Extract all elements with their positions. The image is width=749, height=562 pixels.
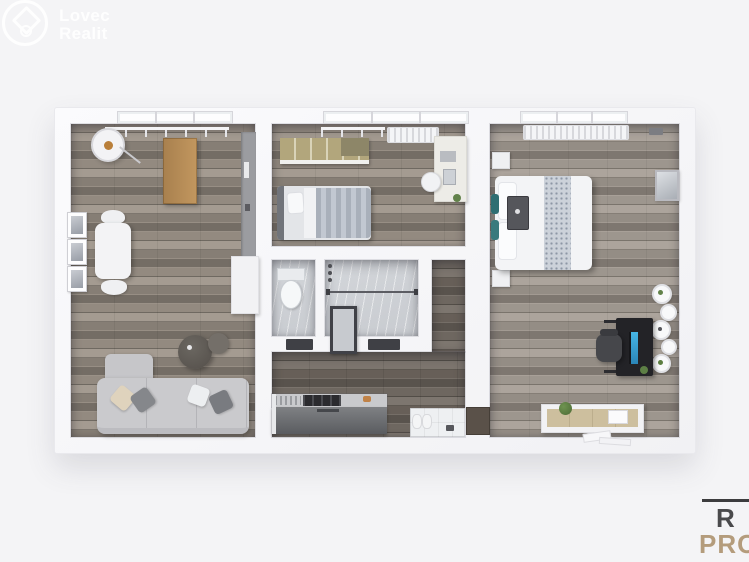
- toilet-bowl: [280, 280, 302, 309]
- cooktop: [303, 395, 341, 406]
- dining-chair: [101, 280, 127, 295]
- small-bedroom-window: [323, 111, 469, 124]
- coffee-table-small: [208, 333, 229, 354]
- sink-drainer: [275, 396, 301, 405]
- papers-on-floor: [599, 437, 631, 446]
- counter-end-panel: [272, 394, 276, 434]
- glass-partition-mount: [414, 289, 418, 295]
- logo-dot-icon: [20, 25, 32, 37]
- counter-item: [363, 396, 371, 402]
- shower-glass-partition: [327, 291, 418, 293]
- hallway-floor: [432, 260, 465, 352]
- floor-lamp-bulb: [104, 141, 113, 150]
- single-bed: [277, 186, 371, 240]
- white-cabinet: [231, 256, 259, 314]
- double-bed: [495, 176, 592, 270]
- kitchen-cabinet-front: [272, 407, 387, 434]
- dining-chair: [101, 210, 125, 224]
- bedroom-curtain-rail: [321, 127, 385, 137]
- master-radiator-grille: [523, 125, 629, 140]
- office-chair: [596, 334, 622, 362]
- watermark-rule: [702, 499, 749, 502]
- single-bed-headboard: [277, 186, 284, 240]
- nightstand: [492, 270, 510, 287]
- desk-plant: [453, 194, 461, 202]
- bathroom-door-panel: [330, 306, 357, 354]
- teal-cushion: [491, 220, 499, 240]
- wall-art-frame: [67, 239, 87, 265]
- shower-fixture: [328, 264, 332, 268]
- round-wall-shelf: [660, 304, 677, 321]
- cabinet-handle: [317, 409, 339, 412]
- single-bed-pillow: [286, 191, 304, 214]
- master-bedroom-floor: [490, 124, 679, 437]
- bedroom-desk: [434, 136, 467, 202]
- bathroom-door-threshold: [368, 339, 400, 350]
- nightstand: [492, 152, 510, 169]
- watermark-text-bottom: PRO: [699, 531, 749, 557]
- desk-chair: [421, 172, 441, 192]
- shoe: [412, 414, 422, 429]
- shower-fixture: [328, 271, 332, 275]
- brand-name-line1: Lovec: [59, 7, 110, 25]
- master-bedroom-window: [520, 111, 628, 124]
- round-wall-shelf: [652, 354, 671, 373]
- apartment-floorplan-render: [55, 108, 695, 453]
- brand-name-line2: Realit: [59, 25, 110, 43]
- office-chair-headrest: [600, 329, 618, 336]
- real-estate-floorplan-page: { "canvas": { "width": 749, "height": 56…: [0, 0, 749, 562]
- tall-gray-cabinet: [241, 132, 256, 270]
- sideboard: [541, 404, 644, 433]
- brand-logo-icon: [2, 0, 48, 46]
- cabinet-detail: [245, 204, 250, 211]
- wardrobe-open-section: [341, 138, 369, 156]
- wall-vent: [649, 128, 663, 135]
- bed-tray: [507, 196, 529, 230]
- brand-name: Lovec Realit: [59, 3, 110, 46]
- teal-cushion: [491, 194, 499, 214]
- oak-desk: [163, 138, 197, 204]
- wall-art-frame: [67, 212, 87, 238]
- dining-table: [95, 223, 131, 279]
- wall-art-frame: [67, 266, 87, 292]
- living-curtain-rail: [105, 127, 229, 137]
- books-stack: [608, 410, 628, 424]
- single-bed-sheet-fold: [304, 188, 316, 238]
- master-wall-picture: [655, 170, 679, 201]
- kitchen-countertop: [272, 394, 387, 407]
- shower-fixture: [328, 278, 332, 282]
- wc-door-threshold: [286, 339, 313, 350]
- bed-patterned-runner: [544, 176, 571, 270]
- bedroom-radiator: [387, 127, 439, 143]
- desk-mirror: [443, 169, 456, 185]
- brand-logo: Lovec Realit: [6, 3, 110, 46]
- entry-item: [446, 425, 454, 431]
- round-wall-shelf: [661, 339, 677, 355]
- watermark-text-top: R: [716, 505, 735, 531]
- desk-plant-small: [640, 366, 648, 374]
- round-wall-shelf: [651, 320, 671, 340]
- coffee-table-large: [178, 335, 212, 369]
- master-door-threshold: [466, 407, 490, 435]
- monitor: [629, 332, 638, 364]
- cabinet-handle: [244, 162, 249, 178]
- potted-plant: [559, 402, 572, 415]
- glass-partition-mount: [326, 289, 330, 295]
- coffee-table-decor: [187, 345, 192, 350]
- living-room-window: [117, 111, 233, 124]
- shoe: [422, 414, 432, 429]
- desk-item: [440, 151, 456, 162]
- wood-wardrobe: [280, 138, 369, 164]
- round-wall-shelf: [652, 284, 672, 304]
- tray-item: [515, 209, 520, 214]
- single-bed-striped-duvet: [316, 188, 371, 238]
